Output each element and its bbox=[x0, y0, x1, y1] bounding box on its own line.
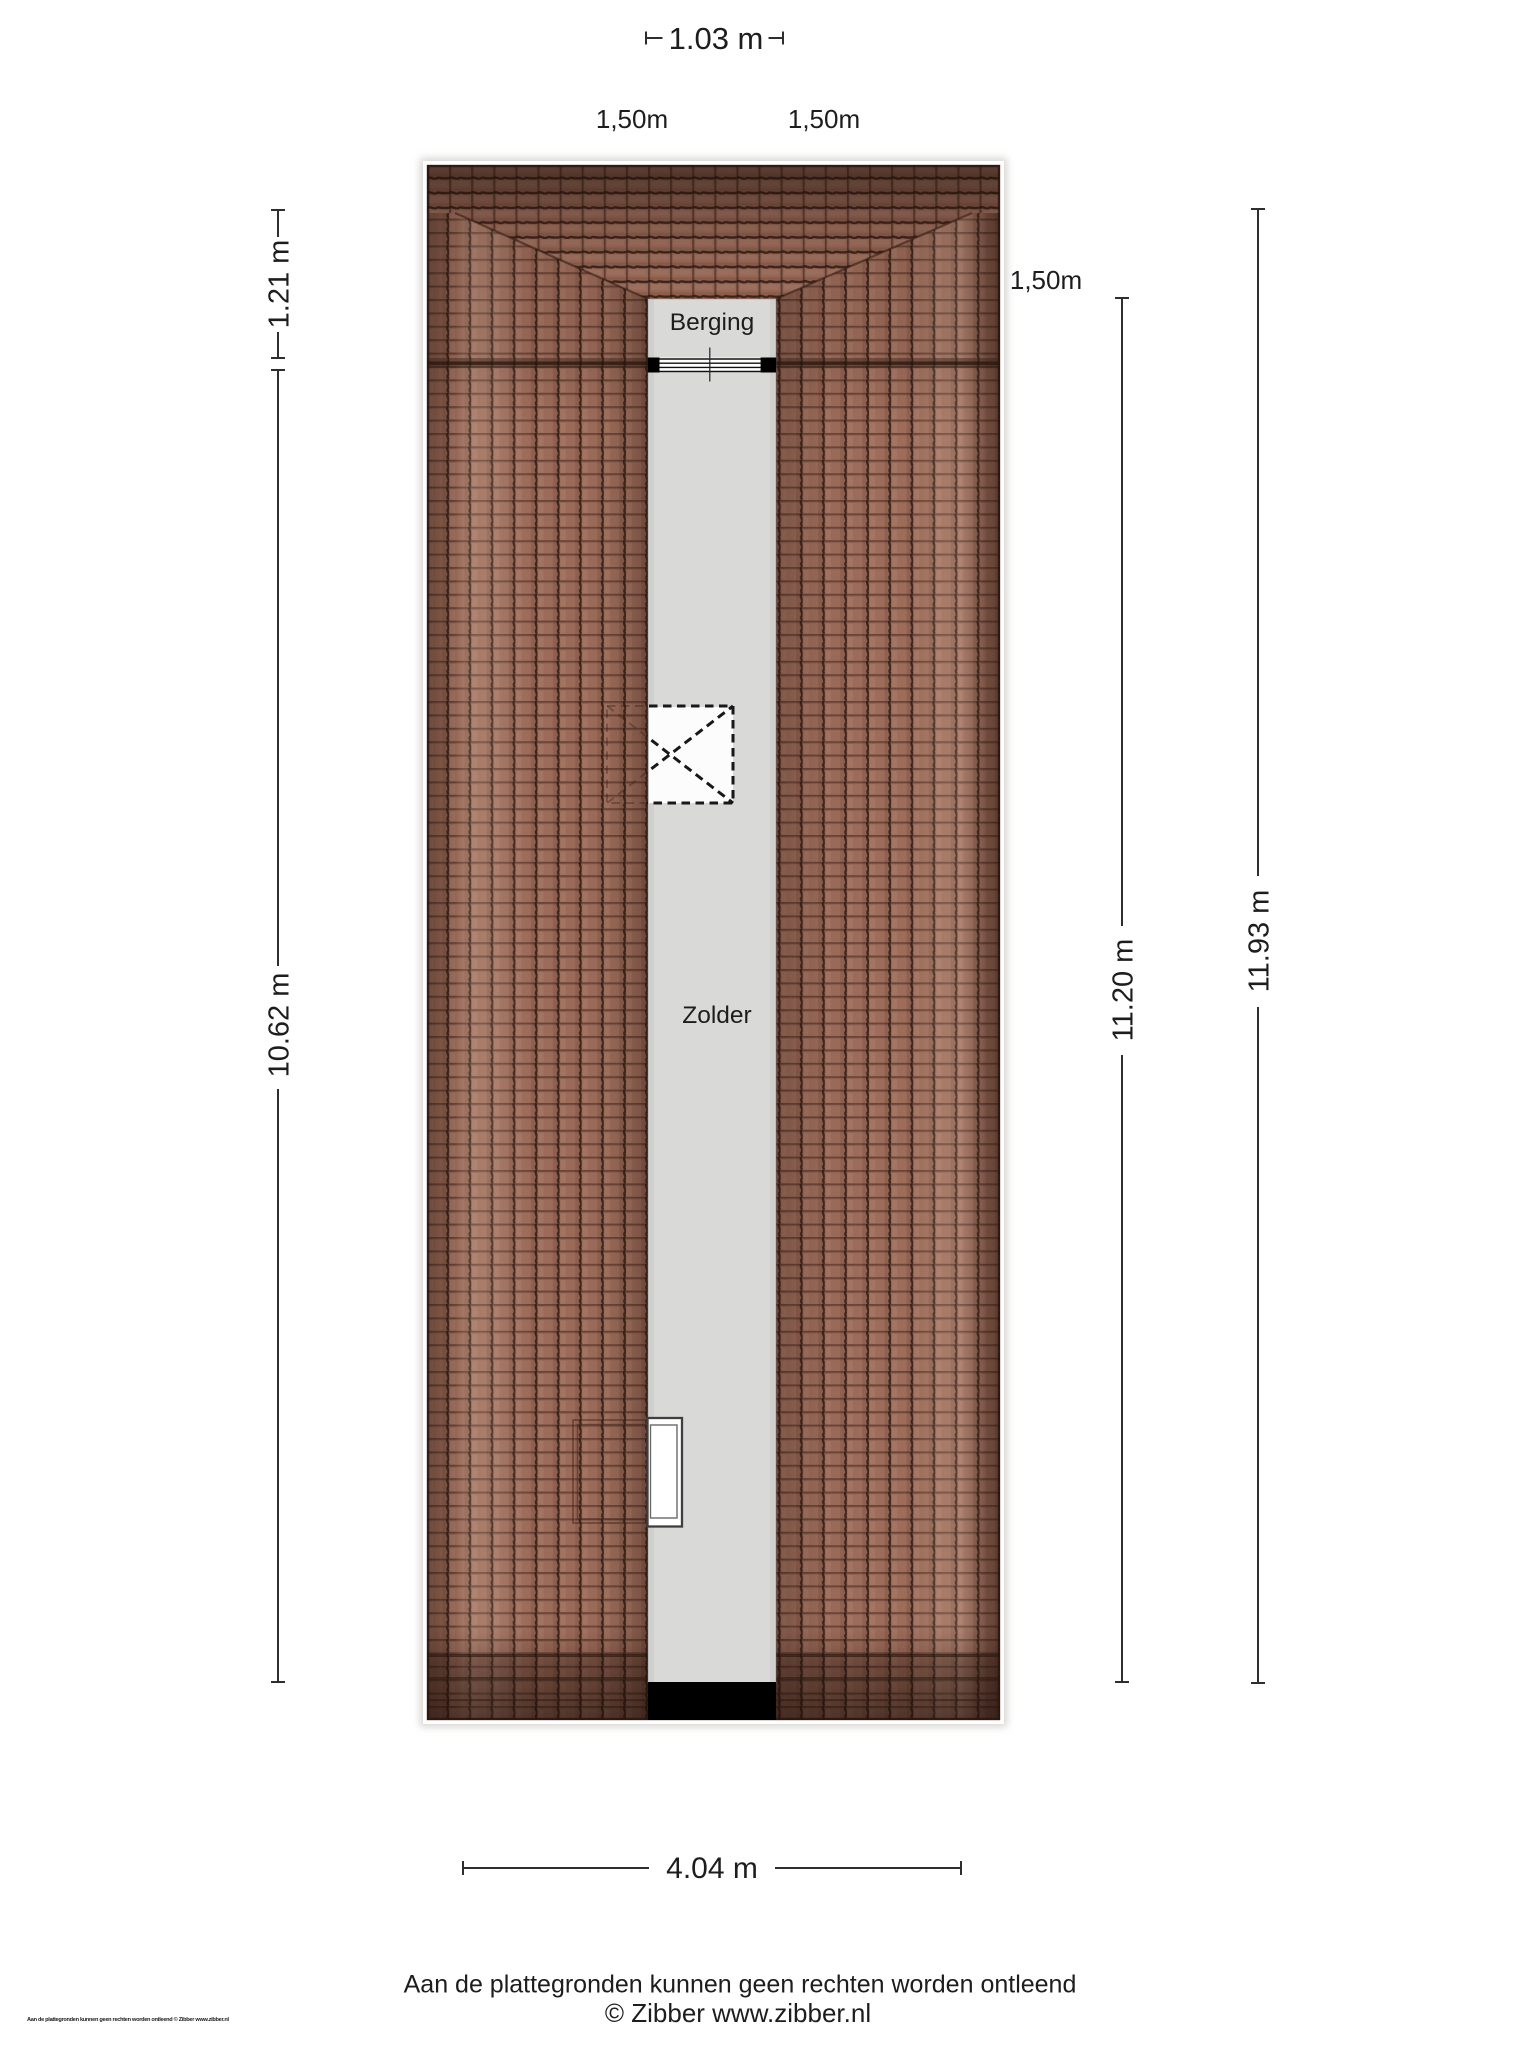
svg-text:1,50m: 1,50m bbox=[1010, 265, 1082, 295]
svg-text:1.03 m: 1.03 m bbox=[669, 21, 764, 56]
svg-text:4.04 m: 4.04 m bbox=[666, 1852, 758, 1885]
svg-text:© Zibber www.zibber.nl: © Zibber www.zibber.nl bbox=[605, 1998, 871, 2028]
svg-text:Berging: Berging bbox=[670, 309, 754, 336]
svg-text:1.21 m: 1.21 m bbox=[264, 240, 296, 329]
svg-text:Aan de plattegronden kunnen ge: Aan de plattegronden kunnen geen rechten… bbox=[404, 1971, 1077, 1999]
svg-text:10.62 m: 10.62 m bbox=[264, 973, 296, 1078]
svg-text:Aan de plattegronden kunnen ge: Aan de plattegronden kunnen geen rechten… bbox=[27, 2016, 229, 2023]
svg-text:11.20 m: 11.20 m bbox=[1108, 939, 1140, 1042]
svg-text:1,50m: 1,50m bbox=[788, 104, 860, 134]
svg-text:1,50m: 1,50m bbox=[596, 104, 668, 134]
svg-text:Zolder: Zolder bbox=[682, 1002, 751, 1029]
svg-text:11.93 m: 11.93 m bbox=[1244, 890, 1276, 993]
